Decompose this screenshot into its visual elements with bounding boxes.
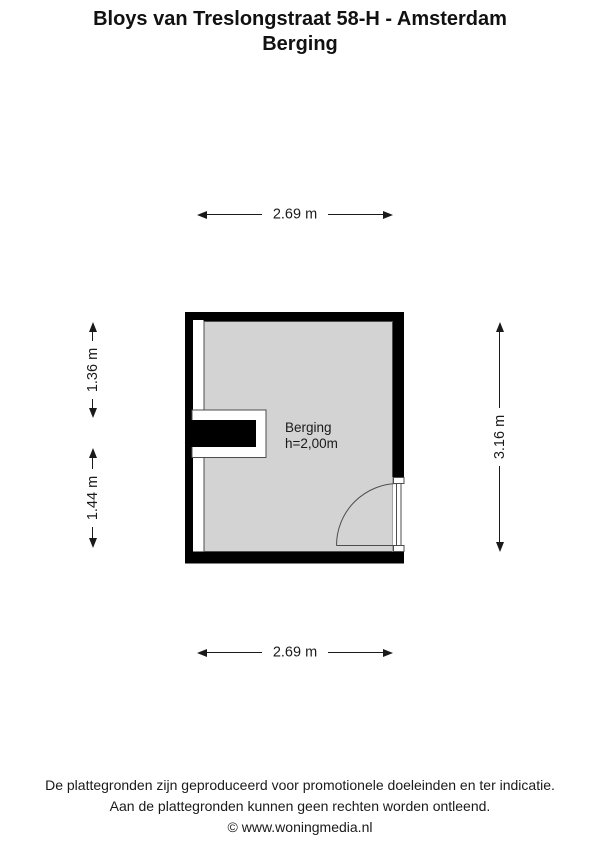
page-title: Bloys van Treslongstraat 58-H - Amsterda…: [0, 7, 600, 32]
dimension-line: [206, 214, 262, 215]
dimension-right-label: 3.16 m: [492, 415, 508, 459]
footer-credit: © www.woningmedia.nl: [0, 817, 600, 838]
floorplan-page: { "title": { "line1": "Bloys van Treslon…: [0, 0, 600, 848]
arrowhead-down-icon: [89, 408, 97, 418]
dimension-bottom-label: 2.69 m: [273, 644, 317, 660]
door-frame-top: [394, 478, 405, 484]
dimension-line: [499, 466, 500, 543]
arrowhead-right-icon: [383, 211, 393, 219]
dimension-line: [499, 331, 500, 408]
dimension-line: [328, 652, 384, 653]
dimension-left-upper-label: 1.36 m: [85, 348, 101, 392]
page-subtitle: Berging: [0, 32, 600, 57]
arrowhead-down-icon: [89, 538, 97, 548]
door-leaf: [397, 484, 402, 546]
room-ceiling-height: h=2,00m: [285, 436, 338, 452]
title-block: Bloys van Treslongstraat 58-H - Amsterda…: [0, 7, 600, 57]
dimension-top-label: 2.69 m: [273, 206, 317, 222]
dimension-right: 3.16 m: [493, 322, 506, 552]
dimension-line: [92, 331, 93, 341]
dimension-line: [206, 652, 262, 653]
footer: De plattegronden zijn geproduceerd voor …: [0, 775, 600, 838]
dimension-left-lower: 1.44 m: [86, 448, 99, 548]
dimension-left-lower-label: 1.44 m: [85, 476, 101, 520]
footer-disclaimer-1: De plattegronden zijn geproduceerd voor …: [0, 775, 600, 796]
dimension-top: 2.69 m: [197, 208, 393, 221]
room-name: Berging: [285, 420, 338, 436]
dimension-line: [328, 214, 384, 215]
door-frame-bottom: [394, 546, 405, 552]
dimension-bottom: 2.69 m: [197, 646, 393, 659]
arrowhead-down-icon: [496, 542, 504, 552]
room-label: Berging h=2,00m: [285, 420, 338, 451]
dimension-left-upper: 1.36 m: [86, 322, 99, 418]
arrowhead-right-icon: [383, 649, 393, 657]
dimension-line: [92, 457, 93, 469]
footer-disclaimer-2: Aan de plattegronden kunnen geen rechten…: [0, 796, 600, 817]
interior-wall-stub: [185, 420, 256, 447]
